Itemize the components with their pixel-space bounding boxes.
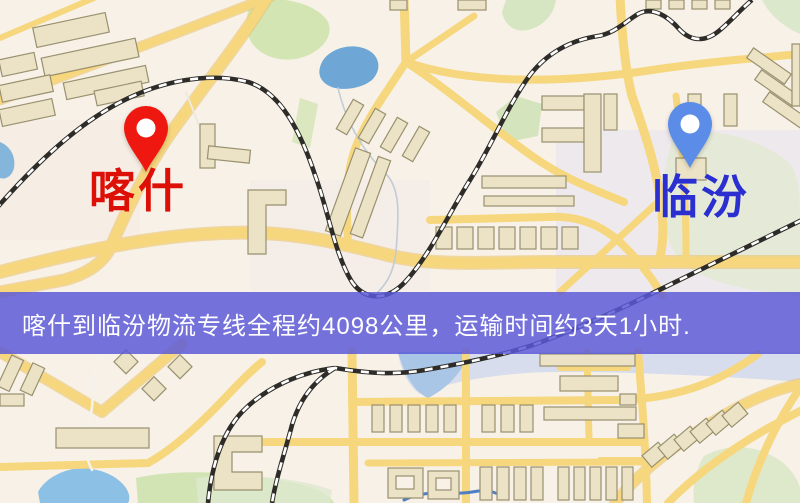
destination-label: 临汾 <box>652 174 750 220</box>
origin-pin[interactable] <box>119 103 173 173</box>
map-pin-icon <box>119 103 173 173</box>
route-info-text: 喀什到临汾物流专线全程约4098公里，运输时间约3天1小时. <box>0 306 691 341</box>
map-pin-icon <box>663 99 717 169</box>
route-info-banner: 喀什到临汾物流专线全程约4098公里，运输时间约3天1小时. <box>0 292 800 354</box>
logistics-route-map: 喀什 临汾 喀什到临汾物流专线全程约4098公里，运输时间约3天1小时. <box>0 0 800 503</box>
destination-pin[interactable] <box>663 99 717 169</box>
map-background[interactable] <box>0 0 800 503</box>
origin-label: 喀什 <box>89 168 187 214</box>
